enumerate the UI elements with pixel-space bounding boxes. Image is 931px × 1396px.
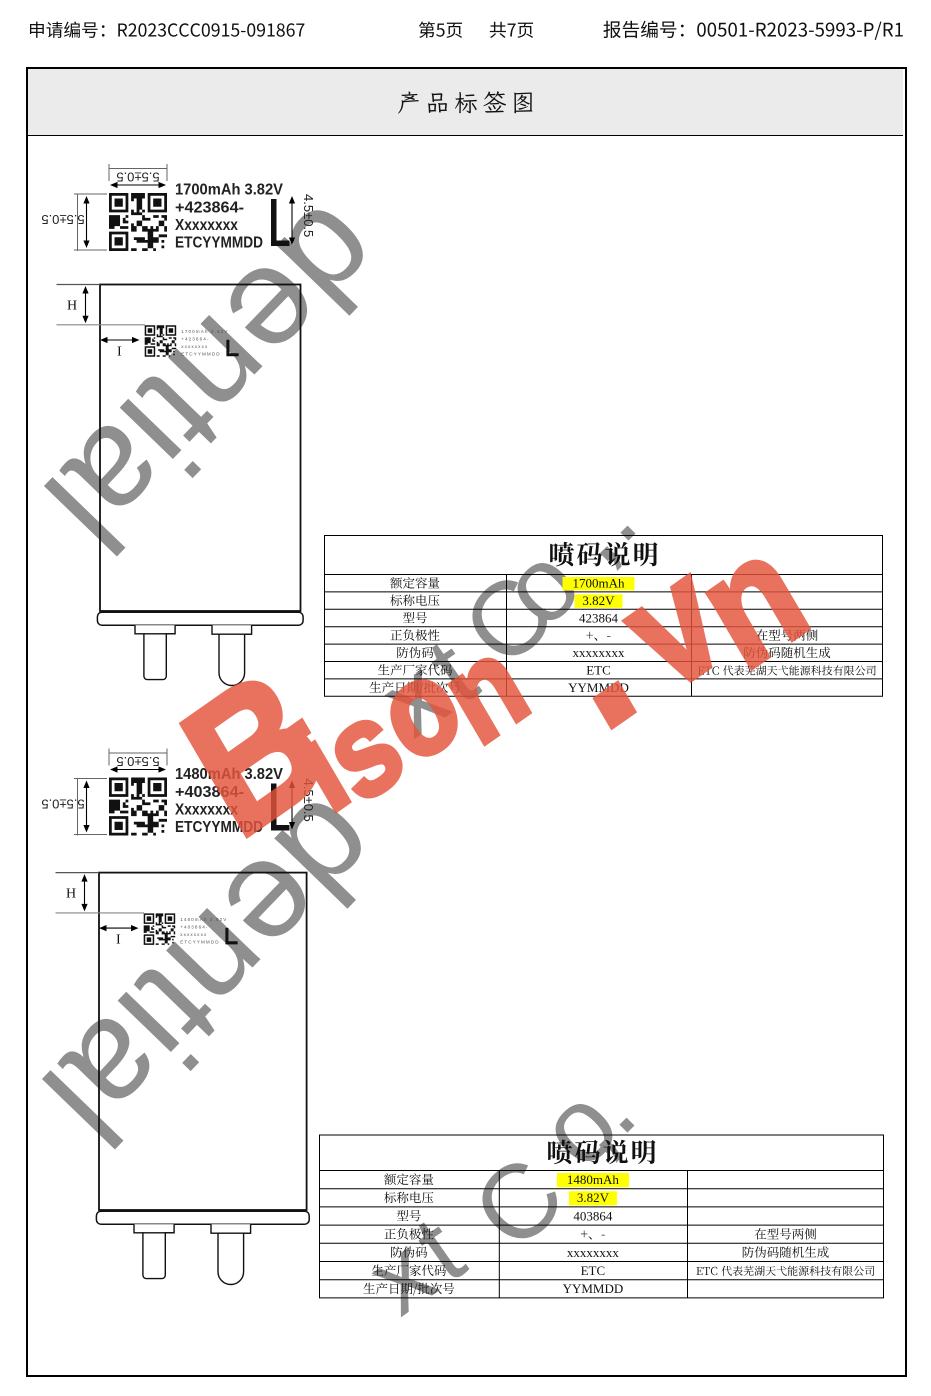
svg-text:Bison.vn: Bison.vn <box>140 466 849 897</box>
